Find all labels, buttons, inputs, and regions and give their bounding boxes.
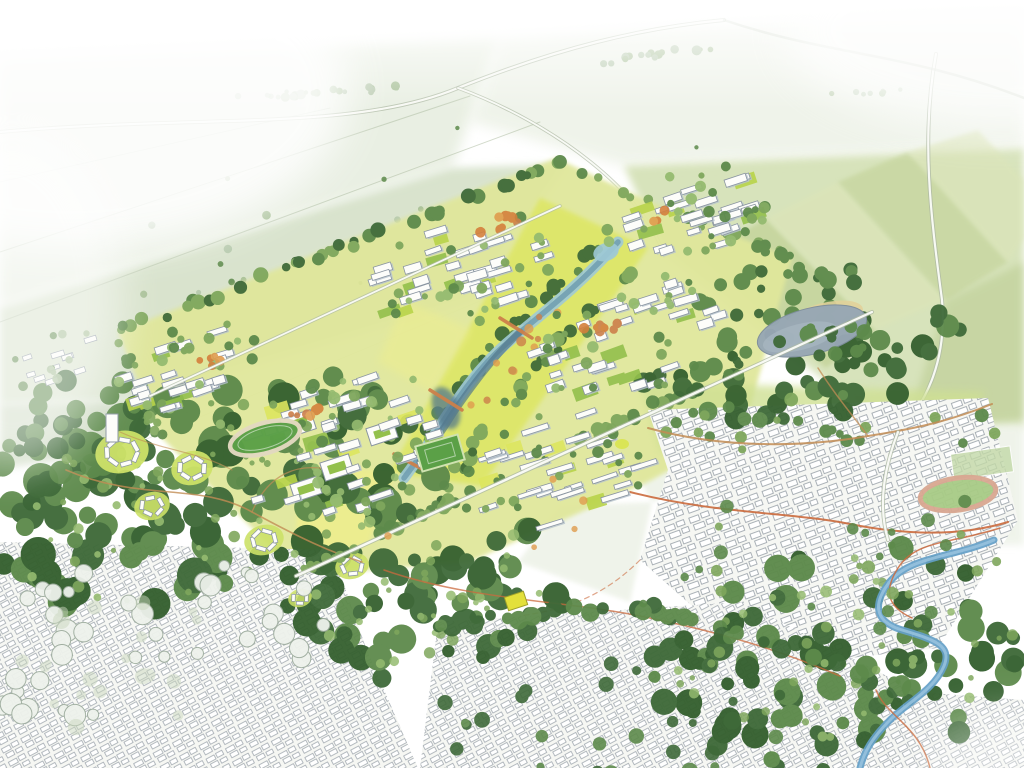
masterplan-illustration (0, 0, 1024, 768)
forest-tower (106, 414, 118, 442)
yellow-meadow-spot (615, 439, 629, 449)
aerial-masterplan-rendering (0, 0, 1024, 768)
